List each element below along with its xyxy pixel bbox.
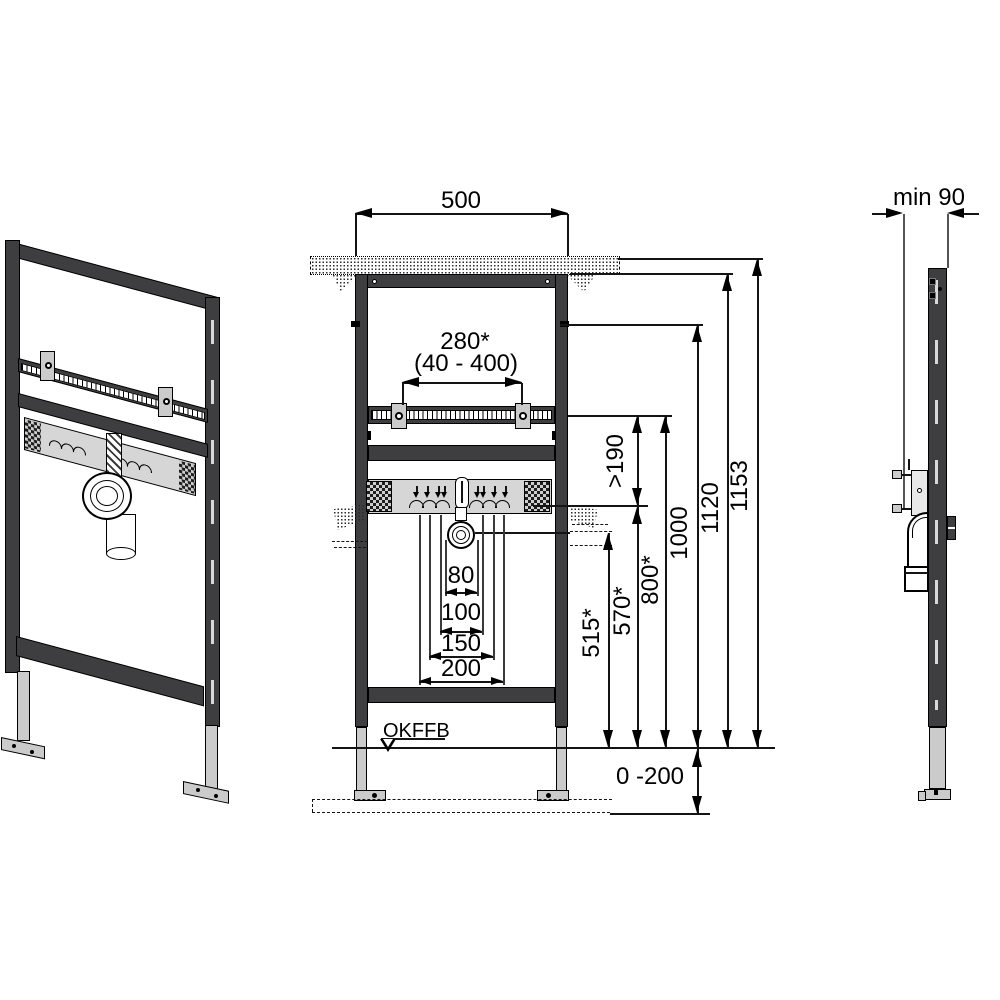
plate-bracket-right — [524, 481, 550, 512]
dim-arrow — [632, 730, 642, 747]
dim-arrow — [660, 730, 670, 747]
iso-right-foot — [205, 725, 218, 791]
dim-line — [757, 259, 759, 748]
dim-arrow — [722, 730, 732, 747]
connection-arrow-icon — [424, 492, 430, 498]
side-bracket-screw — [917, 488, 922, 493]
crossbar-hole — [545, 279, 550, 284]
baseplate-screw — [196, 788, 200, 792]
dim-100-label: 100 — [401, 601, 521, 625]
baseplate-screw — [30, 750, 34, 754]
side-connection-bracket — [911, 470, 928, 516]
connection-arrow-icon — [502, 492, 508, 498]
connection-arc — [73, 445, 86, 455]
side-baseplate-clip — [918, 791, 926, 801]
dim-height-rail-label: 800* — [638, 520, 664, 640]
dim-arrow — [632, 488, 642, 505]
dim-arrow — [491, 677, 503, 685]
front-top-crossbar — [355, 274, 568, 288]
punch-mark — [552, 431, 556, 440]
dim-80-label: 80 — [401, 564, 521, 588]
iso-clamp-hole — [163, 398, 170, 405]
iso-top-crossbar — [5, 240, 220, 313]
front-right-foot — [556, 727, 567, 791]
dim-arrow — [465, 588, 477, 596]
front-middle-rail — [368, 445, 555, 461]
dim-arrow — [632, 416, 642, 433]
connection-arc — [139, 463, 152, 473]
raw-floor-dash-bottom — [312, 812, 610, 813]
drain-connector — [455, 507, 467, 521]
ext-line-frame-face — [947, 214, 949, 268]
dim-height-meter-label: 1000 — [667, 473, 693, 593]
ref-line-meter — [560, 324, 703, 326]
dim-arrow — [551, 208, 568, 218]
dim-min-depth-label: min 90 — [869, 186, 989, 210]
dim-arrow — [603, 730, 613, 747]
iso-drain-socket-ring — [96, 486, 118, 506]
dim-arrow — [722, 274, 732, 291]
raw-floor-dash-top — [312, 799, 612, 800]
profile-pin — [938, 287, 942, 291]
profile-hole — [930, 293, 935, 298]
dim-tap-spacing-range-label: (40 - 400) — [406, 352, 526, 376]
baseplate-screw — [12, 744, 16, 748]
iso-plate-bracket-left — [25, 419, 41, 452]
ref-line-drain — [475, 532, 570, 534]
wall-dash — [572, 524, 608, 525]
ext-line — [402, 383, 404, 405]
side-foot — [929, 727, 946, 789]
dim-line — [872, 213, 887, 215]
connection-arrow-icon — [480, 492, 486, 498]
dim-line — [964, 213, 979, 215]
dim-arrow — [505, 377, 522, 387]
baseplate-screw — [214, 794, 218, 798]
iso-left-upright — [5, 240, 20, 673]
raw-floor-break — [312, 799, 313, 812]
dim-height-drain-label: 515* — [579, 573, 605, 693]
iso-slider-clamp-left — [40, 351, 55, 381]
dim-arrow — [947, 208, 964, 218]
raw-floor-line — [610, 813, 710, 815]
ref-line-drain-dash — [570, 531, 612, 532]
crossbar-hole — [372, 279, 377, 284]
side-baseplate-notch — [934, 789, 938, 795]
drain-outlet-inner — [456, 530, 466, 540]
dim-arrow — [752, 730, 762, 747]
dim-height-upper-label: 1120 — [698, 448, 724, 568]
baseplate-screw — [372, 793, 377, 798]
side-drain-socket-line — [905, 572, 928, 574]
ref-line-top-edge — [570, 273, 733, 275]
meter-mark-left — [351, 321, 360, 327]
connection-arrow-icon — [491, 492, 497, 498]
dim-150-label: 150 — [401, 632, 521, 656]
iso-upright-slots — [211, 320, 214, 710]
iso-plate-bracket-right — [179, 461, 195, 494]
dim-arrow — [886, 208, 903, 218]
iso-slider-clamp-right — [158, 387, 173, 417]
dim-floor-adjust-label: 0 -200 — [590, 765, 710, 789]
technical-drawing-canvas: 500 280* (40 - 400) >190 570* — [0, 0, 1000, 1000]
dim-height-supply-label: 570* — [610, 551, 636, 671]
dim-line — [402, 382, 522, 384]
clamp-hole — [395, 412, 403, 420]
front-bottom-crossbar — [368, 687, 555, 703]
dim-arrow — [402, 377, 419, 387]
dim-arrow — [692, 796, 702, 813]
dim-line — [608, 533, 610, 748]
finished-floor-line — [332, 747, 775, 749]
front-right-upright — [555, 274, 568, 727]
wall-dash — [332, 541, 368, 542]
iso-left-foot — [17, 671, 30, 741]
connection-arrow-icon — [441, 492, 447, 498]
dim-arrow — [660, 416, 670, 433]
profile-hole — [930, 279, 935, 284]
ext-line — [567, 214, 569, 256]
ext-line — [521, 383, 523, 405]
dim-height-total-label: 1153 — [727, 426, 753, 546]
iso-bottom-crossbar — [16, 636, 204, 706]
ceiling-hatch-right — [566, 274, 596, 292]
dim-arrow — [419, 677, 431, 685]
side-bracket-pin — [908, 459, 910, 470]
dim-arrow — [603, 533, 613, 550]
dim-arrow — [692, 730, 702, 747]
side-rear-clip-notch — [948, 527, 955, 529]
baseplate-screw — [546, 793, 551, 798]
side-profile-slots — [935, 280, 938, 710]
front-left-foot — [356, 727, 367, 791]
connection-arc — [495, 500, 510, 508]
iso-drain-pipe-end — [106, 547, 136, 560]
side-bracket-arm — [901, 474, 911, 476]
connection-arrow-icon — [413, 492, 419, 498]
connection-arc — [435, 500, 450, 508]
punch-mark — [367, 431, 371, 440]
dim-frame-width-label: 500 — [401, 189, 521, 213]
dim-arrow — [692, 325, 702, 342]
dim-arrow — [752, 259, 762, 276]
dim-line — [355, 213, 568, 215]
ext-line — [355, 214, 357, 256]
plate-bracket-left — [366, 481, 392, 512]
clamp-hole — [519, 412, 527, 420]
dim-clearance-label: >190 — [603, 401, 629, 521]
ext-line-wall-face — [903, 214, 905, 510]
dim-arrow — [355, 208, 372, 218]
plate-center-slot-line — [461, 481, 463, 503]
dim-arrow — [445, 588, 457, 596]
side-drain-socket — [904, 566, 929, 592]
ref-line-supply — [533, 505, 648, 507]
side-bracket-arm — [901, 508, 911, 510]
wall-dash — [334, 547, 366, 548]
ref-line-total-height — [618, 258, 763, 260]
iso-clamp-hole — [45, 362, 52, 369]
